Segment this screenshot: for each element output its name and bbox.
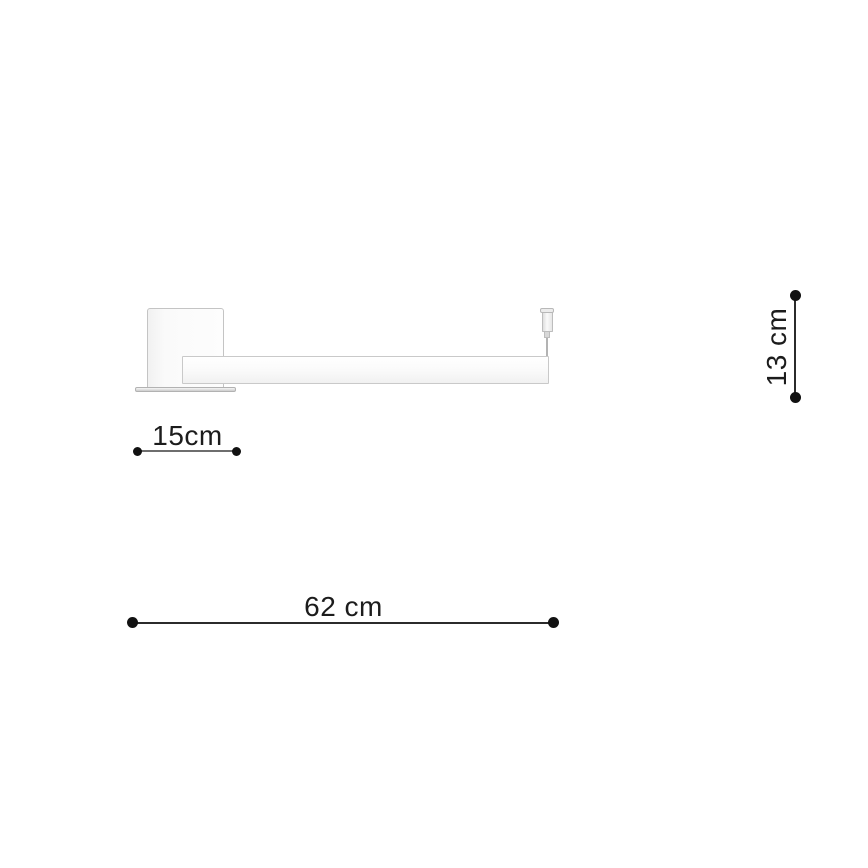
dimension-endpoint-dot: [790, 290, 801, 301]
diagram-canvas: 15cm 62 cm 13 cm: [0, 0, 868, 868]
cable-connector-cap: [540, 308, 554, 313]
lamp-base-flange: [135, 387, 236, 392]
dimension-label-height: 13 cm: [762, 297, 792, 397]
dimension-endpoint-dot: [548, 617, 559, 628]
cable-wire: [546, 338, 548, 357]
dimension-endpoint-dot: [127, 617, 138, 628]
lamp-horizontal-bar: [182, 356, 549, 384]
dimension-endpoint-dot: [133, 447, 142, 456]
dimension-label-mount-width: 15cm: [138, 421, 237, 451]
dimension-line-total-width: [133, 622, 554, 624]
dimension-line-height: [794, 298, 796, 396]
dimension-endpoint-dot: [232, 447, 241, 456]
dimension-label-total-width: 62 cm: [133, 592, 554, 622]
dimension-endpoint-dot: [790, 392, 801, 403]
cable-connector-body: [542, 312, 553, 332]
